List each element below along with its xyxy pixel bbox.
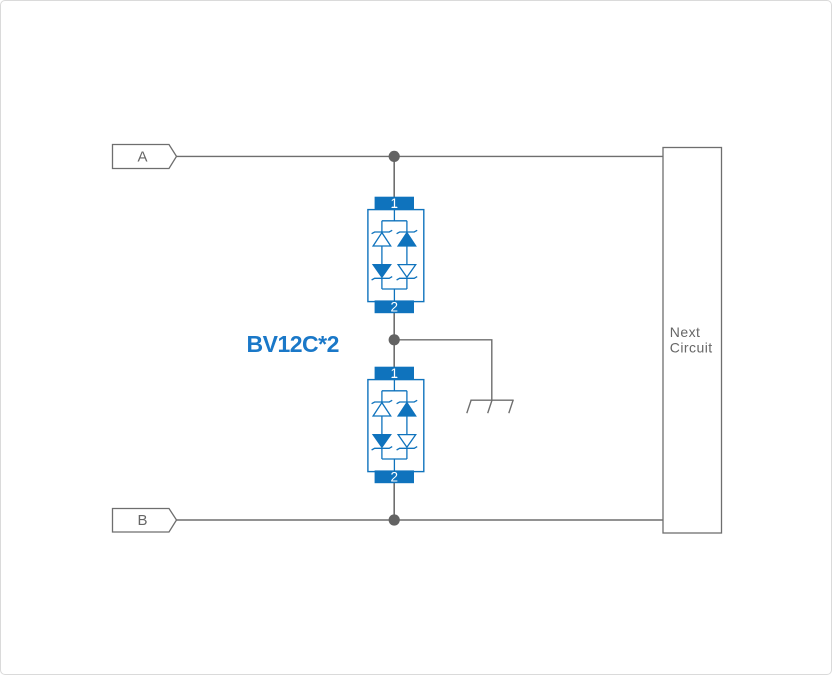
svg-text:B: B [137, 512, 147, 529]
svg-text:A: A [137, 149, 147, 166]
svg-text:Next: Next [670, 324, 701, 340]
svg-text:Circuit: Circuit [670, 340, 713, 356]
svg-text:1: 1 [391, 196, 399, 211]
svg-text:1: 1 [391, 366, 399, 381]
svg-text:2: 2 [391, 469, 399, 484]
svg-text:BV12C*2: BV12C*2 [247, 331, 339, 357]
svg-text:2: 2 [391, 299, 399, 314]
